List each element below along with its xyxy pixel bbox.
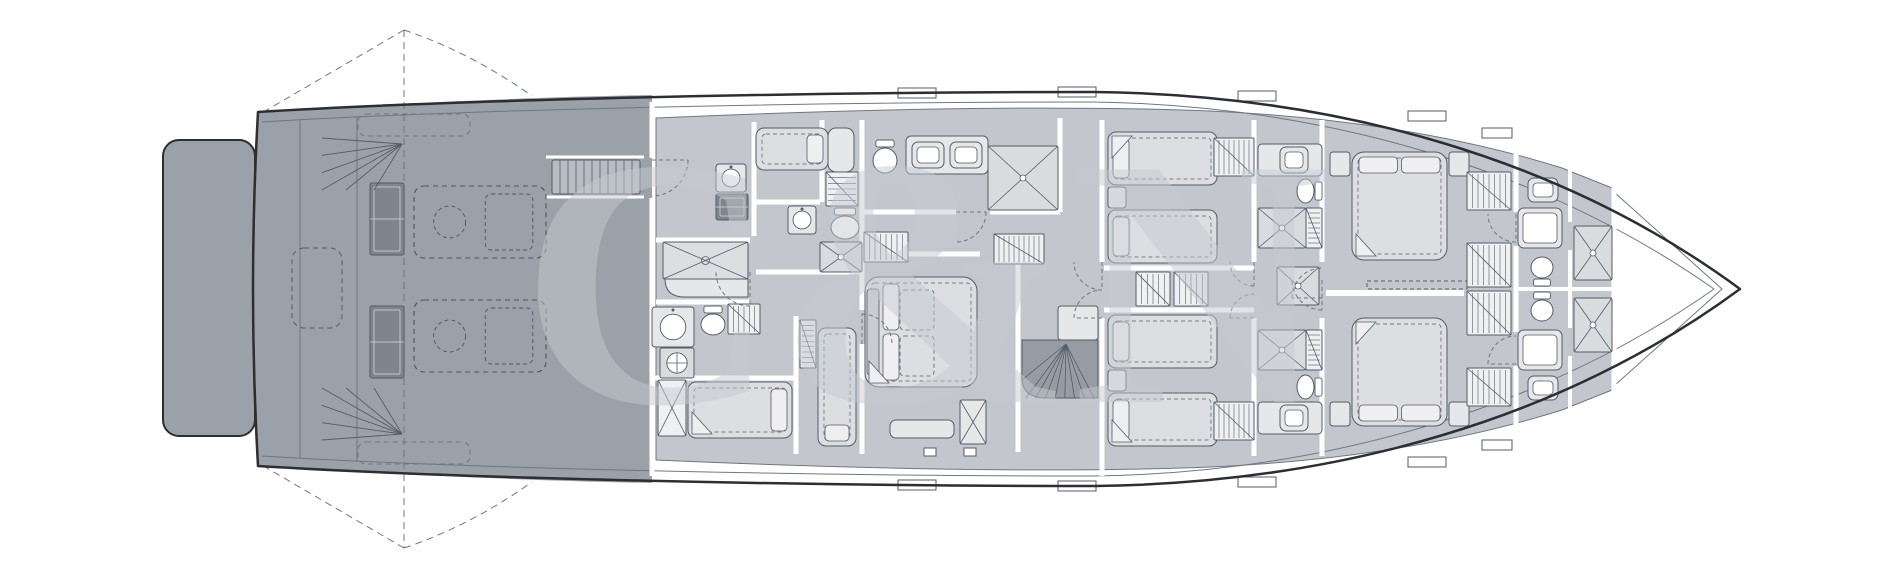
deck-hatch-9 [1408,457,1446,467]
vip-wardrobe-3 [1467,291,1511,335]
vip-bottom-bed [1352,318,1447,426]
fwd-bath-top-tray [1518,208,1562,248]
transom-projection-curve-lower [404,482,532,548]
vip-wardrobe-4 [1467,368,1511,406]
yacht-lower-deck-plan: C&N [0,0,1900,578]
vip-bottom-nightstand-stbd [1449,402,1469,426]
watermark-logo: C&N [521,86,1329,479]
deck-hatch-10 [1482,440,1512,450]
swim-platform [163,140,255,436]
transom-projection-lower [260,464,404,548]
generator-stbd [370,306,404,378]
fwd-shower-top [1574,226,1612,280]
vip-wardrobe-1 [1467,172,1511,210]
deck-hatch-5 [1482,128,1512,138]
floor-plan-svg: C&N [0,0,1900,578]
fwd-shower-bottom [1574,298,1612,352]
vip-top-nightstand-port [1330,152,1350,176]
vip-top-nightstand-stbd [1449,152,1469,176]
transom-projection-curve-upper [404,30,532,96]
vip-wardrobe-2 [1467,243,1511,287]
generator-port [370,183,404,255]
vip-bottom-nightstand-port [1330,402,1350,426]
vip-top-bed [1352,152,1447,260]
transom-projection-upper [260,30,404,114]
deck-hatch-4 [1408,111,1446,121]
fwd-bath-bot-toilet [1531,292,1553,321]
fwd-bath-top-toilet [1531,257,1553,286]
fwd-bath-bot-tray [1518,330,1562,370]
